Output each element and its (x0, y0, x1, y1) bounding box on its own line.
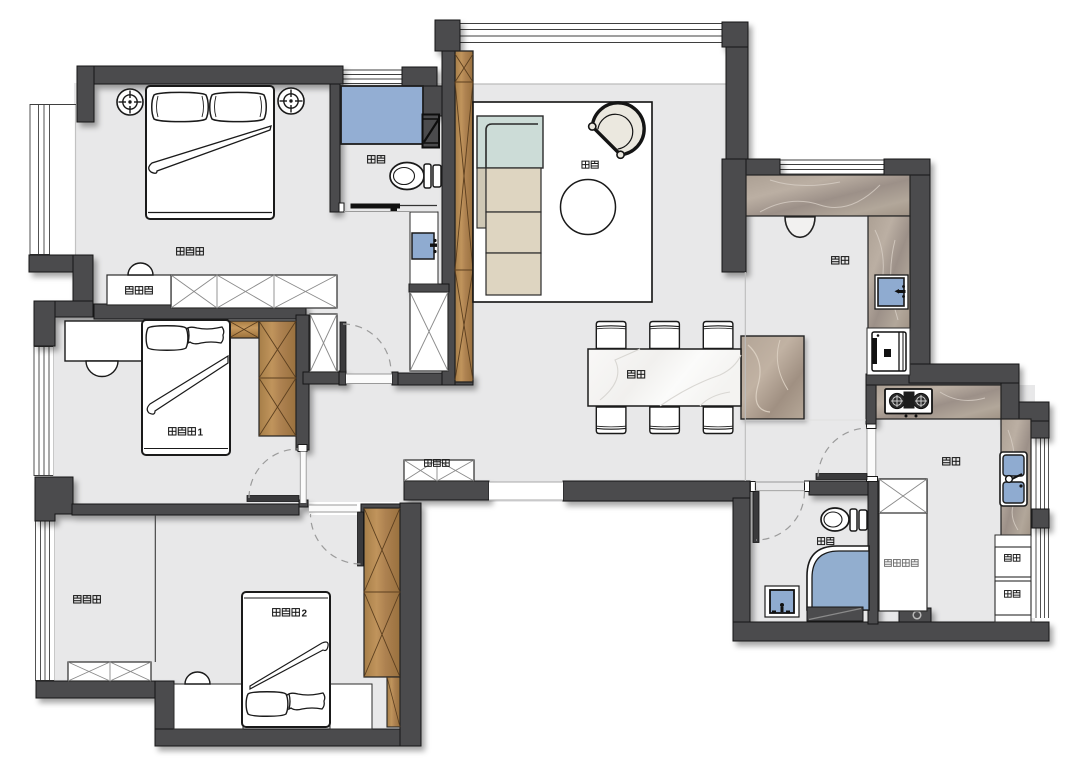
svg-text:1: 1 (198, 427, 204, 438)
svg-text:2: 2 (302, 608, 308, 619)
